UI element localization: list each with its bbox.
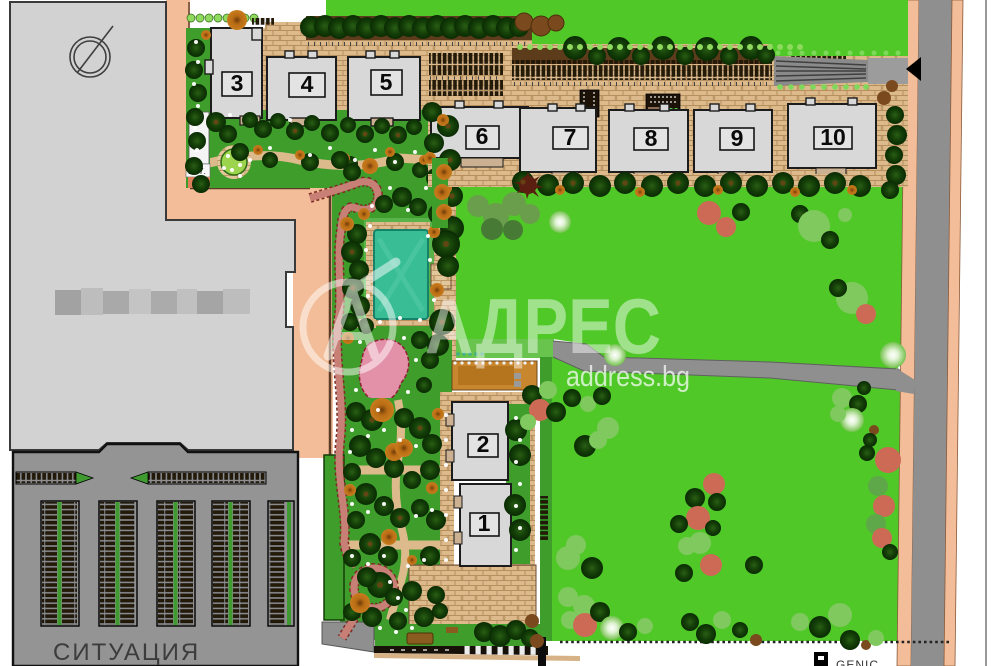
svg-text:address.bg: address.bg bbox=[566, 361, 690, 393]
svg-text:СИТУАЦИЯ: СИТУАЦИЯ bbox=[53, 639, 200, 666]
svg-text:GENIC: GENIC bbox=[836, 658, 879, 666]
svg-text:8: 8 bbox=[645, 125, 658, 151]
svg-text:2: 2 bbox=[477, 431, 490, 457]
svg-text:АДРЕС: АДРЕС bbox=[425, 282, 661, 370]
svg-text:7: 7 bbox=[564, 124, 577, 150]
svg-text:4: 4 bbox=[301, 71, 314, 97]
svg-text:1: 1 bbox=[478, 510, 491, 536]
svg-text:3: 3 bbox=[231, 70, 244, 96]
svg-text:10: 10 bbox=[820, 124, 846, 150]
svg-text:6: 6 bbox=[476, 123, 489, 149]
svg-text:9: 9 bbox=[731, 125, 744, 151]
svg-text:5: 5 bbox=[380, 69, 393, 95]
